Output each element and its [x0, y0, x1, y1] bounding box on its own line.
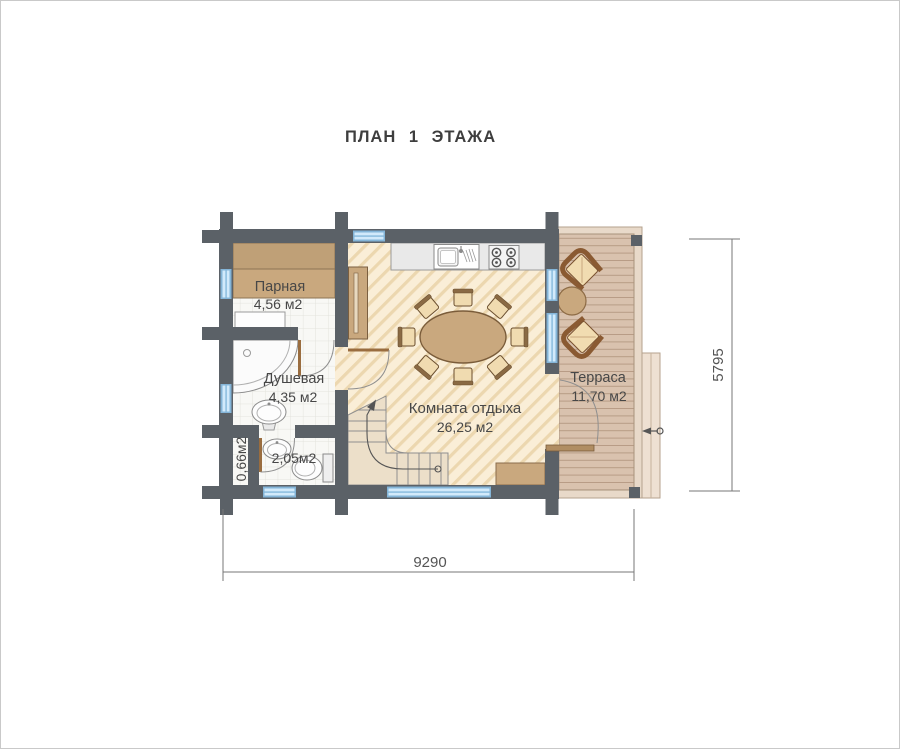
label-wc-area: 2,05м2 — [272, 450, 317, 466]
label-shower-room: Душевая — [264, 371, 325, 387]
dimension-width-value: 9290 — [413, 554, 446, 571]
window — [263, 487, 296, 498]
window — [387, 487, 491, 498]
kitchen-counter — [391, 243, 545, 270]
kitchen-sink — [434, 245, 479, 270]
wall-top — [219, 229, 559, 243]
window — [547, 269, 558, 301]
wall-closet-wc — [248, 438, 259, 485]
label-lounge: Комната отдыха — [409, 400, 522, 417]
dimension-height-value: 5795 — [710, 348, 727, 381]
label-closet-area: 0,66м2 — [233, 436, 249, 481]
log-stub — [202, 327, 247, 340]
label-steam-room-area: 4,56 м2 — [254, 296, 303, 312]
terrace-post-bottom — [629, 487, 640, 498]
label-lounge-area: 26,25 м2 — [437, 419, 494, 435]
label-shower-room-area: 4,35 м2 — [269, 389, 318, 405]
log-stub — [335, 212, 348, 257]
floor-plan-drawing: Парная 4,56 м2 Душевая 4,35 м2 0,66м2 2,… — [1, 1, 900, 749]
window — [353, 231, 385, 242]
wc-sink-faucet — [276, 441, 279, 444]
label-steam-room: Парная — [255, 279, 305, 295]
label-terrace: Терраса — [570, 370, 627, 386]
sauna-heater — [235, 312, 285, 328]
window — [221, 269, 232, 299]
floor-plan-image: ПЛАН 1 ЭТАЖА — [0, 0, 900, 749]
log-stub — [546, 212, 559, 257]
log-stub — [335, 469, 348, 515]
log-stub — [202, 425, 247, 438]
wall-interior-vertical-upper — [335, 243, 348, 347]
page-title: ПЛАН 1 ЭТАЖА — [345, 128, 496, 147]
sauna-bench-upper — [233, 243, 335, 269]
terrace — [554, 227, 663, 498]
dimension-width: 9290 — [223, 509, 634, 581]
window — [221, 384, 232, 413]
sideboard — [496, 463, 545, 485]
stove — [489, 246, 519, 270]
window — [547, 313, 558, 363]
terrace-post-top — [631, 235, 642, 246]
wardrobe — [349, 267, 368, 339]
terrace-table — [558, 287, 586, 315]
wall-shower-wc-right — [295, 425, 335, 438]
dining-chair — [398, 327, 415, 347]
label-terrace-area: 11,70 м2 — [571, 388, 627, 404]
dining-chair — [511, 327, 528, 347]
dining-chair — [453, 368, 473, 385]
dining-table — [420, 311, 506, 363]
terrace-door-opening — [545, 374, 559, 449]
log-stub — [202, 486, 247, 499]
log-stub — [202, 230, 247, 243]
dimension-height: 5795 — [689, 239, 740, 491]
log-stub — [546, 469, 559, 515]
dining-chair — [453, 289, 473, 306]
